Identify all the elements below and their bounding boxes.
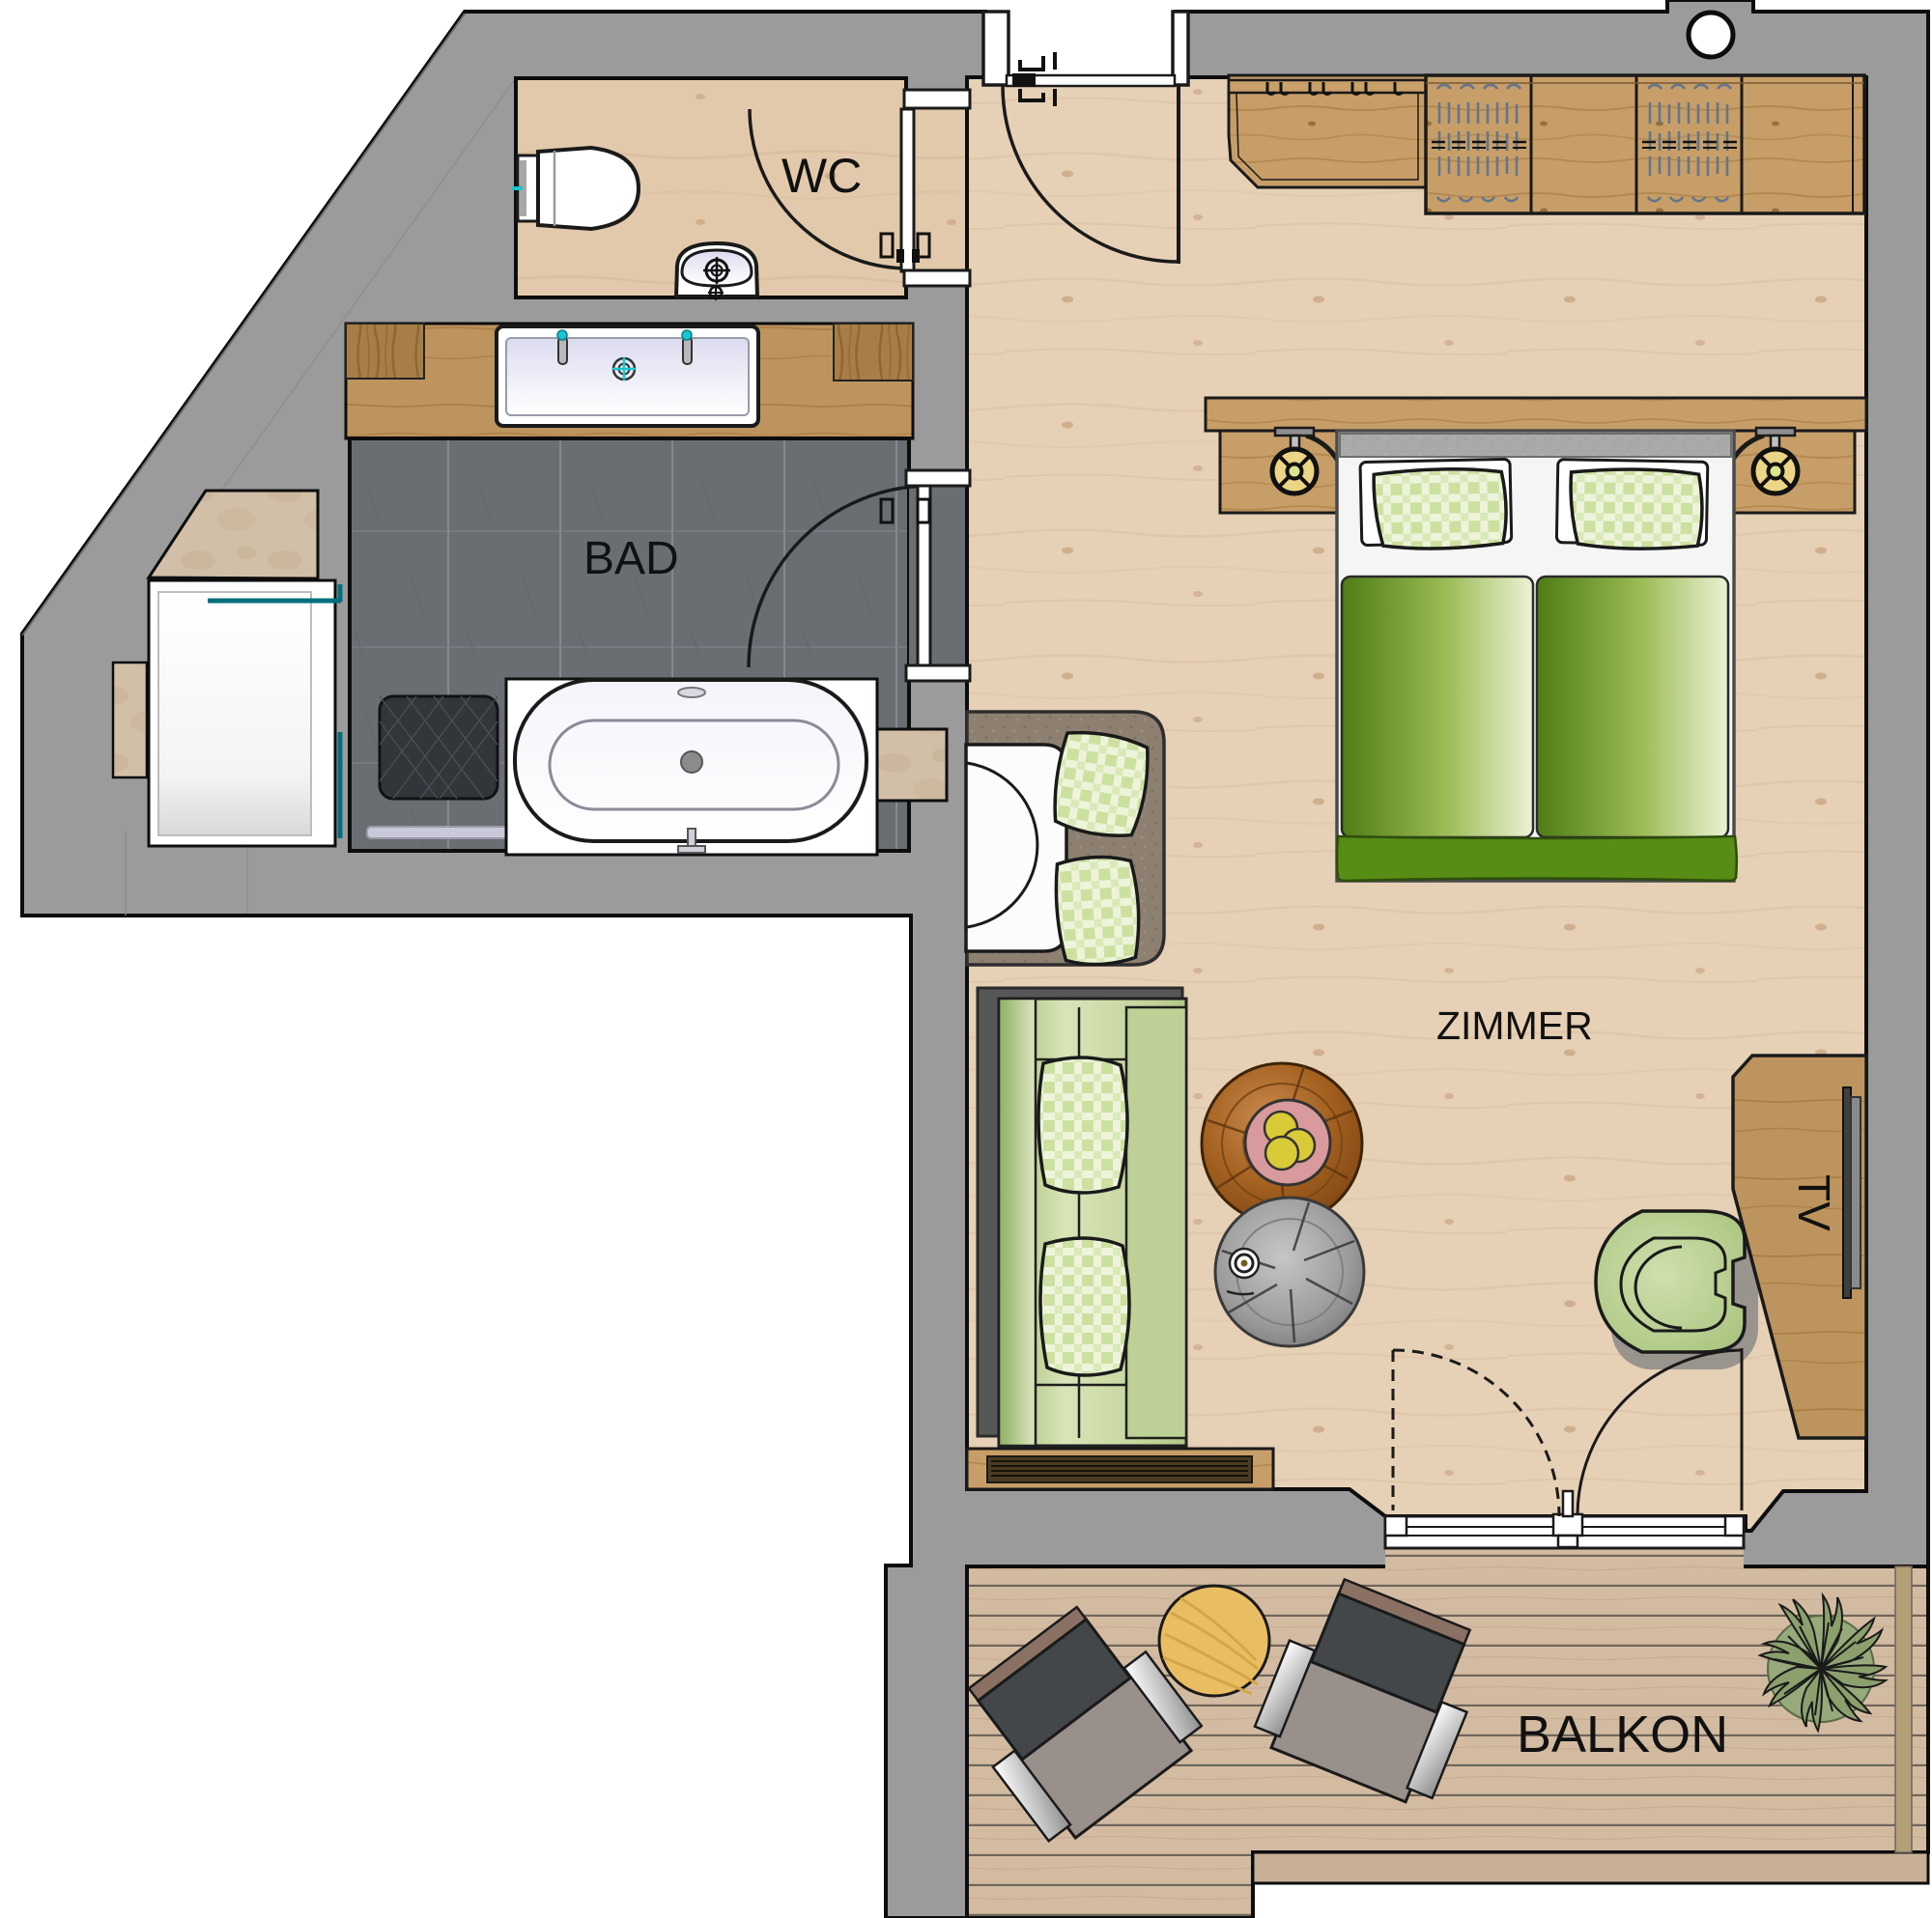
svg-text:BAD: BAD bbox=[583, 533, 679, 584]
svg-text:WC: WC bbox=[781, 149, 862, 203]
svg-text:TV: TV bbox=[1789, 1174, 1839, 1231]
svg-text:ZIMMER: ZIMMER bbox=[1436, 1003, 1593, 1048]
svg-text:BALKON: BALKON bbox=[1517, 1706, 1728, 1763]
